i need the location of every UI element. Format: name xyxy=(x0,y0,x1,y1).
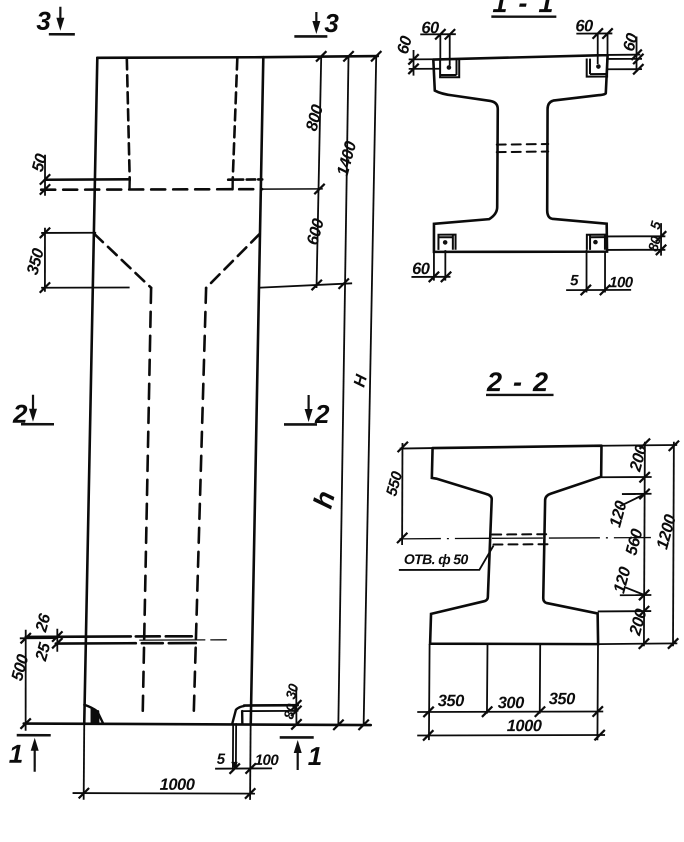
svg-text:5: 5 xyxy=(570,272,579,289)
svg-text:60: 60 xyxy=(620,31,642,54)
svg-text:600: 600 xyxy=(304,216,328,247)
svg-text:3: 3 xyxy=(36,6,51,36)
svg-text:2-2: 2-2 xyxy=(486,367,559,397)
svg-text:350: 350 xyxy=(438,692,465,710)
svg-text:300: 300 xyxy=(498,694,525,712)
svg-text:100: 100 xyxy=(609,274,634,291)
svg-text:1400: 1400 xyxy=(334,139,361,178)
svg-text:26: 26 xyxy=(32,611,54,635)
svg-text:350: 350 xyxy=(549,690,576,708)
svg-text:h: h xyxy=(308,488,341,511)
svg-text:800: 800 xyxy=(303,102,327,133)
svg-text:30: 30 xyxy=(282,682,301,701)
svg-text:5: 5 xyxy=(647,219,665,231)
svg-text:100: 100 xyxy=(255,752,280,769)
svg-text:1200: 1200 xyxy=(653,512,680,551)
svg-text:1000: 1000 xyxy=(160,776,196,794)
svg-text:60: 60 xyxy=(412,260,431,278)
svg-text:1: 1 xyxy=(308,741,322,771)
svg-text:25: 25 xyxy=(32,640,54,664)
svg-text:200: 200 xyxy=(626,442,651,474)
svg-text:1: 1 xyxy=(9,739,23,769)
svg-text:5: 5 xyxy=(217,751,226,768)
svg-text:500: 500 xyxy=(8,652,32,683)
svg-text:3: 3 xyxy=(324,8,339,38)
svg-text:560: 560 xyxy=(622,526,646,557)
svg-text:60: 60 xyxy=(575,17,594,35)
svg-text:60: 60 xyxy=(421,19,440,37)
svg-text:H: H xyxy=(351,372,372,389)
svg-text:ОТВ. ф 50: ОТВ. ф 50 xyxy=(404,551,469,567)
svg-text:50: 50 xyxy=(29,151,51,174)
svg-text:1000: 1000 xyxy=(507,717,543,735)
